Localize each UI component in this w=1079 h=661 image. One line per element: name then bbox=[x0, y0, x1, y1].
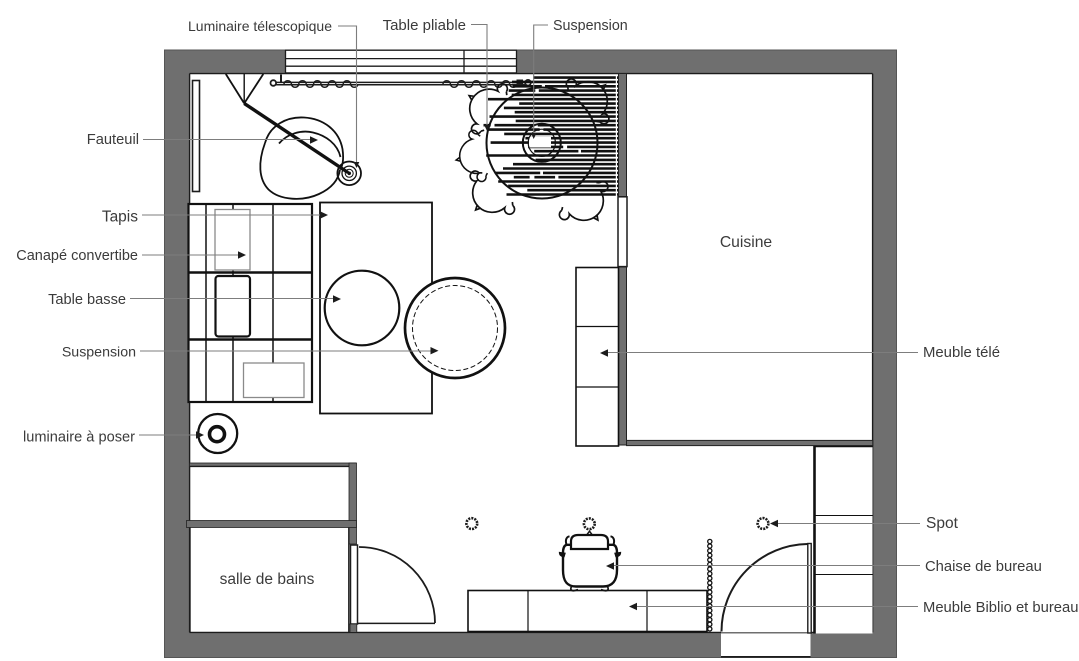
svg-text:Canapé convertibe: Canapé convertibe bbox=[16, 248, 138, 264]
svg-text:luminaire à poser: luminaire à poser bbox=[23, 430, 135, 446]
svg-text:salle de bains: salle de bains bbox=[220, 571, 315, 588]
svg-text:Tapis: Tapis bbox=[102, 209, 138, 226]
svg-text:Spot: Spot bbox=[926, 515, 959, 532]
svg-text:Table pliable: Table pliable bbox=[383, 17, 466, 34]
svg-text:Meuble télé: Meuble télé bbox=[923, 345, 1000, 361]
svg-text:Table basse: Table basse bbox=[48, 292, 126, 308]
svg-text:Suspension: Suspension bbox=[62, 345, 136, 361]
svg-text:Cuisine: Cuisine bbox=[720, 234, 773, 251]
svg-text:Chaise de bureau: Chaise de bureau bbox=[925, 559, 1042, 575]
svg-text:Fauteuil: Fauteuil bbox=[87, 132, 139, 148]
svg-text:Suspension: Suspension bbox=[553, 18, 628, 34]
svg-text:Luminaire télescopique: Luminaire télescopique bbox=[188, 18, 332, 34]
svg-text:Meuble Biblio et bureau: Meuble Biblio et bureau bbox=[923, 600, 1078, 616]
